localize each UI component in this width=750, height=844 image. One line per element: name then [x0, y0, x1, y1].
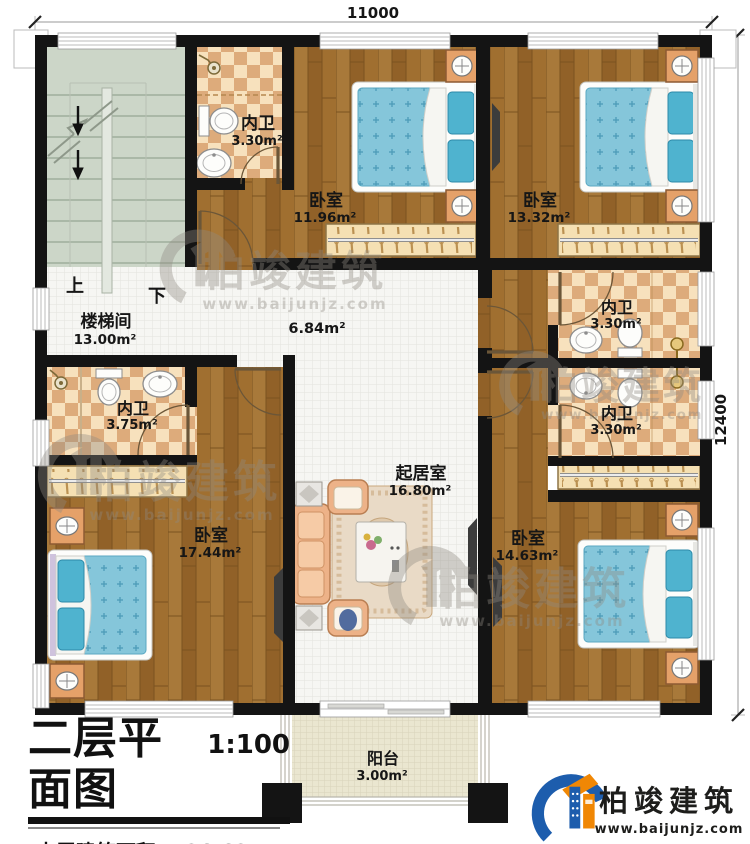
room-area-living-room: 16.80m² [389, 483, 452, 499]
room-label-bath-top: 内卫 [241, 113, 275, 134]
svg-text:柏竣建筑: 柏竣建筑 [438, 564, 630, 615]
room-area-bath-left: 3.75m² [106, 418, 157, 433]
balcony-sliding-door [320, 701, 450, 717]
nightstand-icon [666, 190, 698, 222]
room-label-stairwell: 楼梯间 [81, 311, 132, 332]
wall [282, 35, 294, 190]
svg-text:柏竣建筑: 柏竣建筑 [89, 457, 281, 508]
room-area-bath-right-lower: 3.30m² [590, 423, 641, 438]
armchair-icon [328, 600, 368, 636]
room-area-bath-top: 3.30m² [231, 134, 282, 149]
balcony-post [468, 783, 508, 823]
room-area-corridor: 6.84m² [288, 321, 345, 337]
wall [35, 355, 237, 367]
wall [478, 416, 492, 703]
toilet-icon [199, 106, 238, 136]
page-title: 二层平面图 [28, 714, 195, 815]
wall [35, 35, 47, 715]
room-area-bedroom-bottom-left: 17.44m² [179, 545, 242, 561]
nightstand-icon [50, 508, 84, 544]
room-label-bath-left: 内卫 [117, 399, 149, 418]
window [320, 33, 450, 49]
room-label-living-room: 起居室 [395, 463, 447, 484]
wall [476, 35, 490, 270]
tv-icon [492, 103, 500, 171]
sink-icon [197, 149, 231, 177]
window [528, 701, 660, 717]
wall [548, 490, 700, 502]
room-area-stairwell: 13.00m² [74, 332, 137, 348]
stairwell-floor [47, 47, 185, 267]
window [698, 528, 714, 660]
wall [478, 270, 492, 298]
sofa-icon [292, 504, 330, 604]
room-area-bedroom-top-right: 13.32m² [508, 210, 571, 226]
window [528, 33, 658, 49]
room-area-bedroom-bottom-right: 14.63m² [496, 548, 559, 564]
dimension-right: 12400 [712, 29, 745, 721]
wall [185, 367, 197, 407]
floor-plan-page: 11000 12400 [0, 0, 750, 844]
room-area-bedroom-top-middle: 11.96m² [294, 210, 357, 226]
tv-icon [274, 568, 283, 642]
brand-block: 柏竣建筑 www.baijunjz.com [594, 778, 744, 837]
nightstand-icon [666, 504, 698, 536]
room-area-balcony: 3.00m² [356, 769, 407, 784]
wall [197, 178, 245, 190]
room-label-bedroom-bottom-right: 卧室 [511, 528, 545, 549]
room-label-bedroom-top-right: 卧室 [523, 190, 557, 211]
nightstand-icon [446, 190, 478, 222]
window [698, 272, 714, 346]
svg-text:www.baijunjz.com: www.baijunjz.com [202, 295, 387, 313]
brand-name: 柏竣建筑 [594, 778, 744, 820]
title-underline-thin [28, 827, 280, 829]
room-label-balcony: 阳台 [367, 749, 399, 768]
side-table-icon [296, 606, 322, 630]
bed-bottom-left [48, 550, 152, 660]
wall [283, 355, 295, 703]
svg-text:柏竣建筑: 柏竣建筑 [203, 247, 387, 296]
stair-label-up: 上 [66, 276, 84, 297]
stair-label-down: 下 [148, 286, 166, 307]
window [33, 288, 49, 330]
sink-icon [143, 371, 177, 397]
title-block: 二层平面图 1:100 本层建筑面积: 126.62m² 层高: 3.30m [28, 714, 290, 844]
svg-text:www.baijunjz.com: www.baijunjz.com [89, 506, 274, 524]
nightstand-icon [666, 652, 698, 684]
floor-area-value: 126.62m² [171, 840, 278, 844]
dimension-right-value: 12400 [712, 394, 730, 446]
room-area-bath-right-upper: 3.30m² [590, 317, 641, 332]
bed-top-right [580, 82, 702, 192]
dimension-top-value: 11000 [347, 4, 399, 22]
wall [548, 456, 700, 466]
scale-label: 1:100 [207, 730, 290, 760]
window [58, 33, 176, 49]
bed-top-middle [352, 82, 480, 192]
room-label-bath-right-lower: 内卫 [601, 404, 633, 423]
brand-website: www.baijunjz.com [594, 822, 744, 837]
window [33, 664, 49, 708]
svg-text:柏竣建筑: 柏竣建筑 [540, 364, 704, 408]
title-underline [28, 817, 290, 824]
dimension-top: 11000 [29, 4, 718, 30]
side-table-icon [296, 482, 322, 506]
wardrobe-icon [558, 224, 700, 256]
nightstand-icon [446, 50, 478, 82]
room-label-bedroom-bottom-left: 卧室 [194, 525, 228, 546]
svg-text:www.baijunjz.com: www.baijunjz.com [439, 612, 624, 630]
room-label-bath-right-upper: 内卫 [601, 298, 633, 317]
wall [548, 325, 558, 360]
nightstand-icon [666, 50, 698, 82]
floor-area-label: 本层建筑面积: [36, 840, 164, 844]
wardrobe-icon [558, 462, 700, 489]
window [698, 58, 714, 222]
floor-area-row: 本层建筑面积: 126.62m² [36, 836, 290, 844]
room-label-bedroom-top-middle: 卧室 [309, 190, 343, 211]
brand-logo-icon [538, 774, 601, 837]
nightstand-icon [50, 664, 84, 698]
armchair-icon [328, 480, 368, 514]
